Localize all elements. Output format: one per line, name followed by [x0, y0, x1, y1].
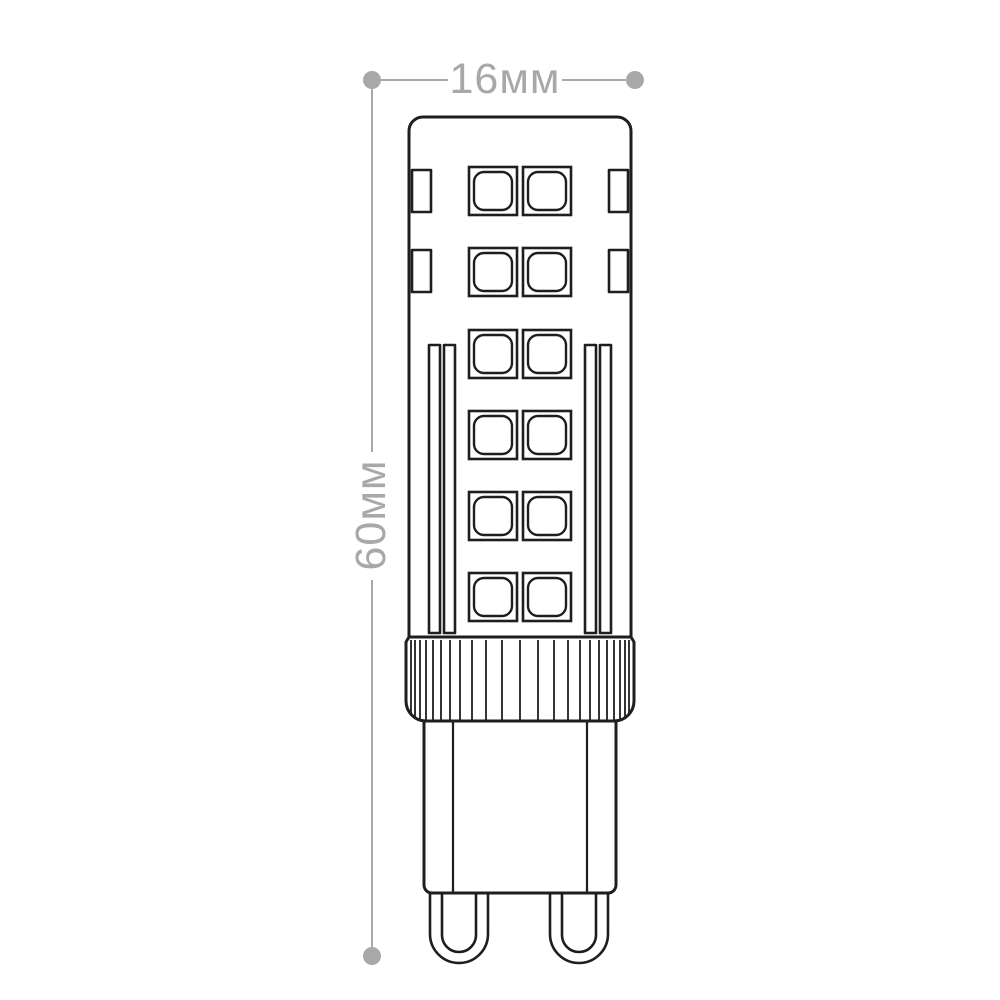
led-chip	[469, 167, 517, 215]
side-led	[412, 170, 431, 212]
led-chip	[523, 167, 571, 215]
led-chip-inner	[474, 253, 512, 291]
led-chip	[469, 573, 517, 621]
led-chip-inner	[474, 416, 512, 454]
collar-group	[406, 637, 634, 721]
led-chip	[523, 411, 571, 459]
led-strip	[429, 345, 440, 633]
diagram-canvas: 16мм 60мм	[0, 0, 1000, 1000]
pin-left-inner	[442, 893, 476, 952]
led-chip	[523, 492, 571, 540]
lamp-drawing	[406, 117, 634, 963]
led-chip	[469, 411, 517, 459]
base-group	[424, 721, 616, 893]
height-dimension-label: 60мм	[347, 460, 395, 571]
lamp-body	[409, 117, 631, 637]
led-chip	[469, 248, 517, 296]
dimension-endpoint-dot	[363, 71, 381, 89]
dimension-endpoint-dot	[626, 71, 644, 89]
dimension-endpoint-dot	[363, 947, 381, 965]
led-chip-inner	[528, 172, 566, 210]
led-chip-inner	[528, 253, 566, 291]
led-chip-inner	[528, 497, 566, 535]
led-chip-inner	[528, 578, 566, 616]
led-chip-inner	[474, 497, 512, 535]
width-dimension: 16мм	[363, 55, 644, 103]
led-strip	[600, 345, 611, 633]
g9-pins	[430, 893, 608, 963]
led-chip	[469, 492, 517, 540]
led-chip-inner	[474, 335, 512, 373]
led-strip	[585, 345, 596, 633]
led-chip	[523, 248, 571, 296]
led-chip-inner	[528, 335, 566, 373]
width-dimension-label: 16мм	[450, 55, 561, 103]
led-chip	[469, 330, 517, 378]
led-chip-inner	[528, 416, 566, 454]
pin-right-inner	[562, 893, 596, 952]
led-chip-inner	[474, 578, 512, 616]
led-chip	[523, 573, 571, 621]
led-chip-inner	[474, 172, 512, 210]
lamp-dimension-drawing: 16мм 60мм	[0, 0, 1000, 1000]
height-dimension: 60мм	[347, 89, 395, 965]
side-led	[609, 170, 628, 212]
led-chip	[523, 330, 571, 378]
side-led	[609, 250, 628, 292]
side-led	[412, 250, 431, 292]
led-strip	[444, 345, 455, 633]
